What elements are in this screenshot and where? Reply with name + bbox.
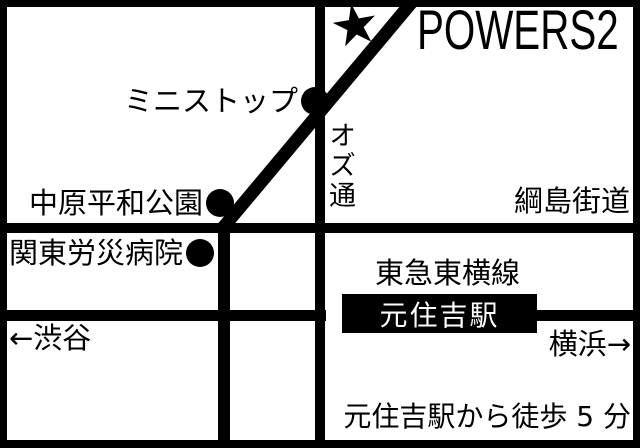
road-label-oz-street: オズ通 xyxy=(326,121,353,211)
poi-kanto-rosai-hospital-label: 関東労災病院 xyxy=(9,238,183,268)
poi-nakahara-peace-park-dot xyxy=(206,189,234,217)
roads-layer xyxy=(0,0,640,448)
road-label-tsunashima-kaido: 綱島街道 xyxy=(514,186,630,216)
poi-ministop: ミニストップ xyxy=(124,86,329,116)
poi-kanto-rosai-hospital: 関東労災病院 xyxy=(9,238,214,268)
poi-nakahara-peace-park: 中原平和公園 xyxy=(29,188,234,218)
station-box: 元住吉駅 xyxy=(342,294,537,333)
direction-yokohama: 横浜→ xyxy=(549,329,631,359)
direction-shibuya: ←渋谷 xyxy=(9,323,91,353)
station-name: 元住吉駅 xyxy=(379,294,499,334)
road-side-street xyxy=(218,223,230,448)
poi-ministop-label: ミニストップ xyxy=(124,86,298,116)
road-oz-street xyxy=(315,0,325,448)
poi-ministop-dot xyxy=(301,87,329,115)
walk-time-note: 元住吉駅から徒歩 5 分 xyxy=(343,402,631,431)
railway-line-label: 東急東横線 xyxy=(375,258,520,288)
venue-star-icon: ★ xyxy=(326,0,385,58)
venue-title: POWERS2 xyxy=(417,2,619,58)
poi-kanto-rosai-hospital-dot xyxy=(186,239,214,267)
railway-toyoko-line-left xyxy=(0,310,326,321)
railway-toyoko-line-right xyxy=(537,310,640,321)
access-map: ★ POWERS2 ミニストップ 中原平和公園 関東労災病院 オズ通 綱島街道 … xyxy=(0,0,640,448)
poi-nakahara-peace-park-label: 中原平和公園 xyxy=(29,188,203,218)
